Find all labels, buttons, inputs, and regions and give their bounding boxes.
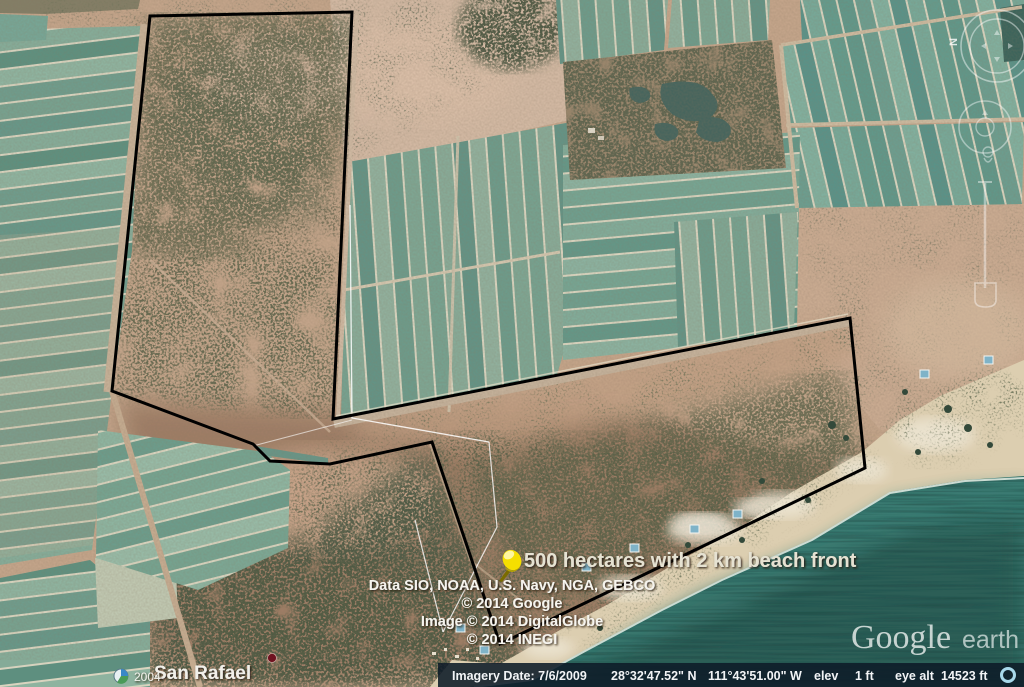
svg-text:Data SIO, NOAA, U.S. Navy, NGA: Data SIO, NOAA, U.S. Navy, NGA, GEBCO [369, 578, 656, 594]
svg-text:© 2014 INEGI: © 2014 INEGI [467, 632, 557, 648]
svg-text:500 hectares with 2 km beach f: 500 hectares with 2 km beach front [524, 550, 857, 572]
svg-text:San Rafael: San Rafael [154, 663, 251, 684]
svg-text:N: N [948, 38, 960, 46]
svg-text:earth: earth [962, 626, 1019, 654]
svg-text:111°43'51.00" W: 111°43'51.00" W [708, 669, 802, 683]
svg-text:Google: Google [851, 619, 951, 656]
svg-text:eye alt: eye alt [895, 669, 935, 683]
svg-text:Image © 2014 DigitalGlobe: Image © 2014 DigitalGlobe [421, 614, 603, 630]
svg-text:Imagery Date: 7/6/2009: Imagery Date: 7/6/2009 [452, 669, 587, 683]
svg-text:elev: elev [814, 669, 838, 683]
svg-text:© 2014 Google: © 2014 Google [462, 596, 563, 612]
svg-text:28°32'47.52" N: 28°32'47.52" N [611, 669, 697, 683]
svg-text:1 ft: 1 ft [855, 669, 875, 683]
svg-text:2004: 2004 [134, 670, 161, 684]
svg-text:14523 ft: 14523 ft [941, 669, 988, 683]
